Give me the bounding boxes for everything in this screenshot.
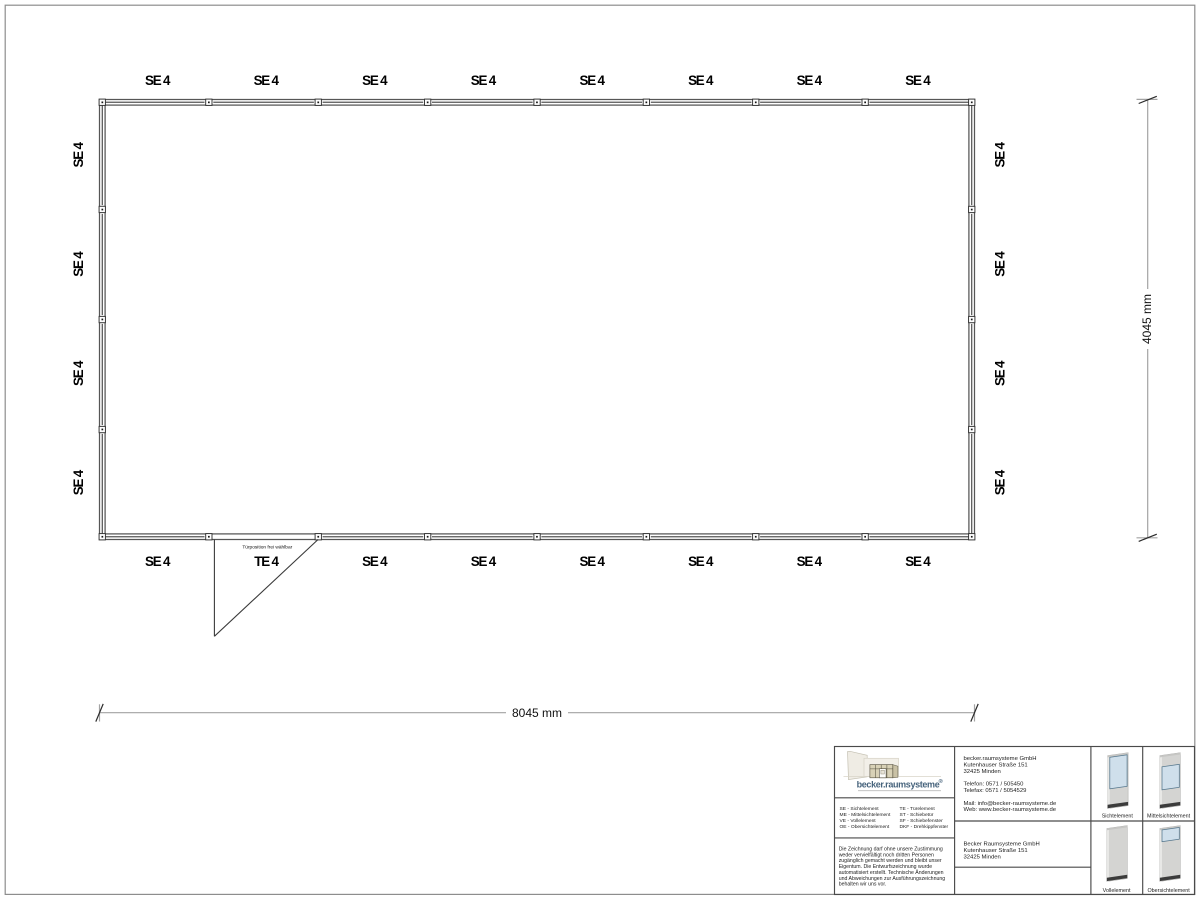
svg-text:Telefon: 0571 / 505450: Telefon: 0571 / 505450 — [964, 782, 1025, 788]
svg-text:Web: www.becker-raumsysteme.de: Web: www.becker-raumsysteme.de — [964, 807, 1057, 813]
svg-text:SE 4: SE 4 — [688, 73, 714, 88]
svg-text:Telefax: 0571 / 5054529: Telefax: 0571 / 5054529 — [964, 788, 1027, 794]
svg-text:Becker Raumsysteme GmbH: Becker Raumsysteme GmbH — [964, 842, 1040, 848]
svg-text:SF - Schiebefenster: SF - Schiebefenster — [900, 818, 944, 824]
svg-text:SE 4: SE 4 — [471, 73, 497, 88]
svg-text:behalten wir uns vor.: behalten wir uns vor. — [839, 882, 887, 888]
svg-text:SE 4: SE 4 — [145, 554, 171, 569]
svg-text:SE 4: SE 4 — [71, 360, 86, 386]
svg-text:SE 4: SE 4 — [362, 73, 388, 88]
svg-text:SE 4: SE 4 — [797, 73, 823, 88]
svg-text:SE 4: SE 4 — [993, 142, 1008, 168]
svg-text:TE - Türelement: TE - Türelement — [900, 806, 936, 812]
svg-text:VE - Vollelement: VE - Vollelement — [840, 818, 877, 824]
svg-text:SE 4: SE 4 — [905, 554, 931, 569]
svg-text:TE 4: TE 4 — [254, 554, 279, 569]
svg-text:Mittelsichtelement: Mittelsichtelement — [1147, 813, 1191, 819]
svg-text:SE 4: SE 4 — [905, 73, 931, 88]
svg-text:SE 4: SE 4 — [471, 554, 497, 569]
svg-text:becker.raumsysteme: becker.raumsysteme — [857, 779, 940, 789]
svg-text:SE 4: SE 4 — [993, 251, 1008, 277]
svg-text:4045 mm: 4045 mm — [1140, 294, 1154, 344]
svg-text:32425 Minden: 32425 Minden — [964, 854, 1001, 860]
svg-text:SE 4: SE 4 — [71, 251, 86, 277]
svg-text:OE - Obersichtelement: OE - Obersichtelement — [840, 824, 890, 830]
svg-text:SE 4: SE 4 — [993, 360, 1008, 386]
svg-text:®: ® — [939, 778, 944, 785]
svg-text:Kutenhauser Straße 151: Kutenhauser Straße 151 — [964, 848, 1028, 854]
svg-text:SE 4: SE 4 — [797, 554, 823, 569]
svg-text:SE 4: SE 4 — [71, 469, 86, 495]
svg-text:ME - Mittelsichtelement: ME - Mittelsichtelement — [840, 812, 891, 818]
svg-text:Mail: info@becker-raumsysteme.: Mail: info@becker-raumsysteme.de — [964, 801, 1057, 807]
svg-text:SE 4: SE 4 — [145, 73, 171, 88]
svg-text:Obersichtelement: Obersichtelement — [1147, 888, 1190, 894]
svg-text:SE - Sichtelement: SE - Sichtelement — [840, 806, 880, 812]
svg-text:32425 Minden: 32425 Minden — [964, 769, 1001, 775]
svg-text:SE 4: SE 4 — [362, 554, 388, 569]
svg-text:Türposition frei wählbar: Türposition frei wählbar — [242, 544, 292, 550]
svg-text:SE 4: SE 4 — [254, 73, 280, 88]
svg-text:8045 mm: 8045 mm — [512, 706, 562, 720]
svg-text:DKF - Drehkippfenster: DKF - Drehkippfenster — [900, 824, 949, 830]
svg-text:becker.raumsysteme GmbH: becker.raumsysteme GmbH — [964, 756, 1037, 762]
svg-text:SE 4: SE 4 — [993, 469, 1008, 495]
svg-text:ST - Schiebetür: ST - Schiebetür — [900, 812, 934, 818]
svg-text:SE 4: SE 4 — [579, 554, 605, 569]
svg-text:Kutenhauser Straße 151: Kutenhauser Straße 151 — [964, 762, 1028, 768]
svg-text:SE 4: SE 4 — [579, 73, 605, 88]
svg-text:Vollelement: Vollelement — [1103, 888, 1131, 894]
svg-text:Sichtelement: Sichtelement — [1102, 813, 1134, 819]
svg-text:SE 4: SE 4 — [688, 554, 714, 569]
svg-text:SE 4: SE 4 — [71, 142, 86, 168]
